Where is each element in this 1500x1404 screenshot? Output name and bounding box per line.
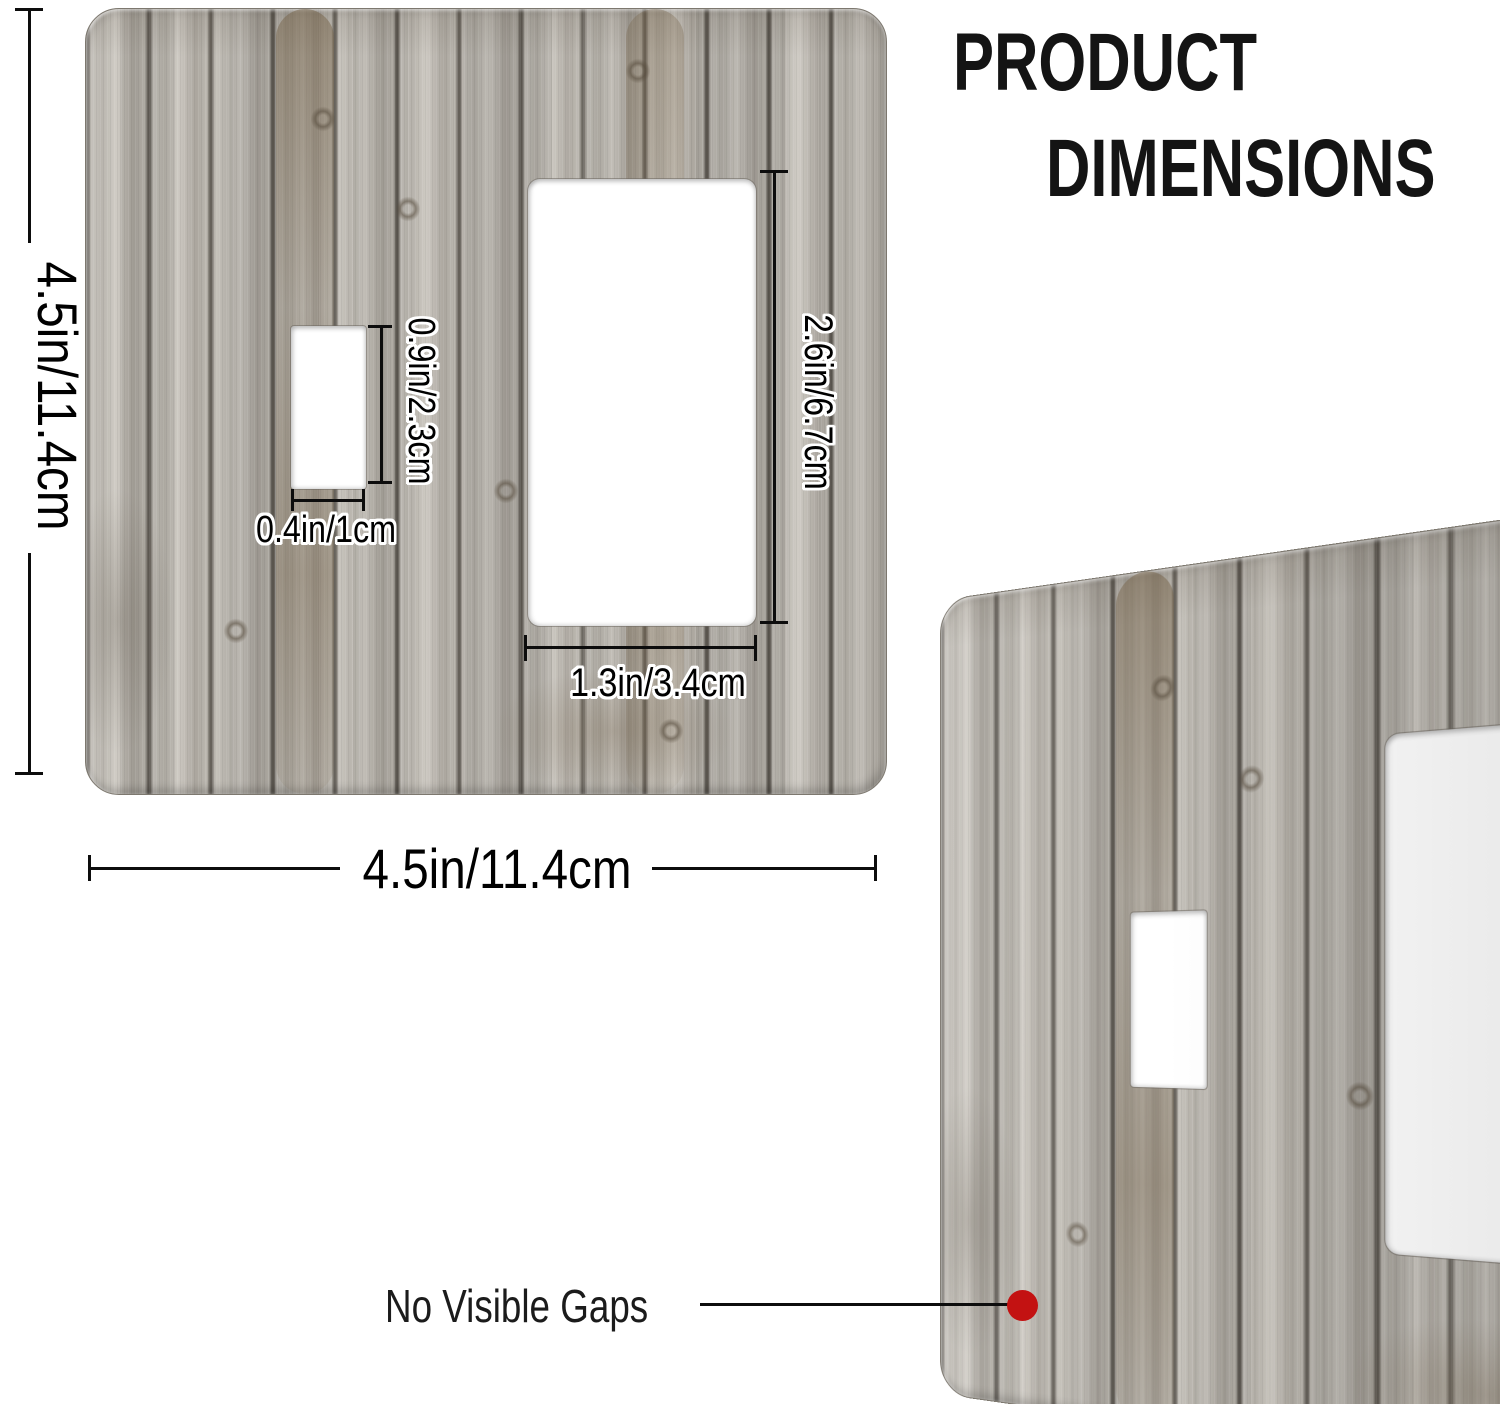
toggle-height-label: 0.9in/2.3cm (402, 318, 440, 485)
toggle-width-right-tick (362, 489, 365, 511)
switch-plate-front-view (85, 8, 887, 795)
wood-knot (396, 195, 420, 223)
callout-dot (1007, 1290, 1038, 1321)
page-title-line2: DIMENSIONS (1046, 128, 1436, 210)
plate-height-bottom-tick (15, 772, 43, 775)
rocker-width-right-tick (754, 635, 757, 661)
rocker-height-line (773, 172, 776, 624)
plate-height-line-lower (28, 553, 31, 774)
plate-width-line-right (652, 867, 874, 870)
plate-width-right-tick (874, 855, 877, 881)
perspective-shading (941, 469, 1500, 1404)
toggle-height-bottom-tick (368, 481, 392, 484)
wood-knot (311, 105, 335, 133)
rocker-height-label: 2.6in/6.7cm (798, 314, 838, 490)
page-title-line1: PRODUCT (953, 22, 1257, 104)
wood-knot (494, 477, 518, 505)
wood-knot (659, 717, 683, 745)
rocker-width-line (527, 646, 754, 649)
toggle-width-label: 0.4in/1cm (256, 511, 396, 549)
wood-knot (224, 617, 248, 645)
plate-width-line-left (91, 867, 340, 870)
rocker-switch-cutout (528, 179, 756, 626)
toggle-switch-cutout (291, 326, 366, 489)
switch-plate-angled-view (940, 467, 1500, 1404)
rocker-height-bottom-tick (760, 621, 788, 624)
plate-height-label: 4.5in/11.4cm (29, 261, 85, 530)
plate-width-label: 4.5in/11.4cm (362, 841, 631, 897)
rocker-width-label: 1.3in/3.4cm (570, 663, 746, 703)
product-dimensions-image: 4.5in/11.4cm 4.5in/11.4cm 0.9in/2.3cm 0.… (0, 0, 1500, 1404)
plate-height-line-upper (28, 10, 31, 243)
wood-knot (626, 57, 650, 85)
callout-line (700, 1303, 1012, 1306)
toggle-height-line (380, 327, 383, 484)
no-visible-gaps-label: No Visible Gaps (385, 1281, 648, 1332)
toggle-width-line (293, 499, 363, 502)
